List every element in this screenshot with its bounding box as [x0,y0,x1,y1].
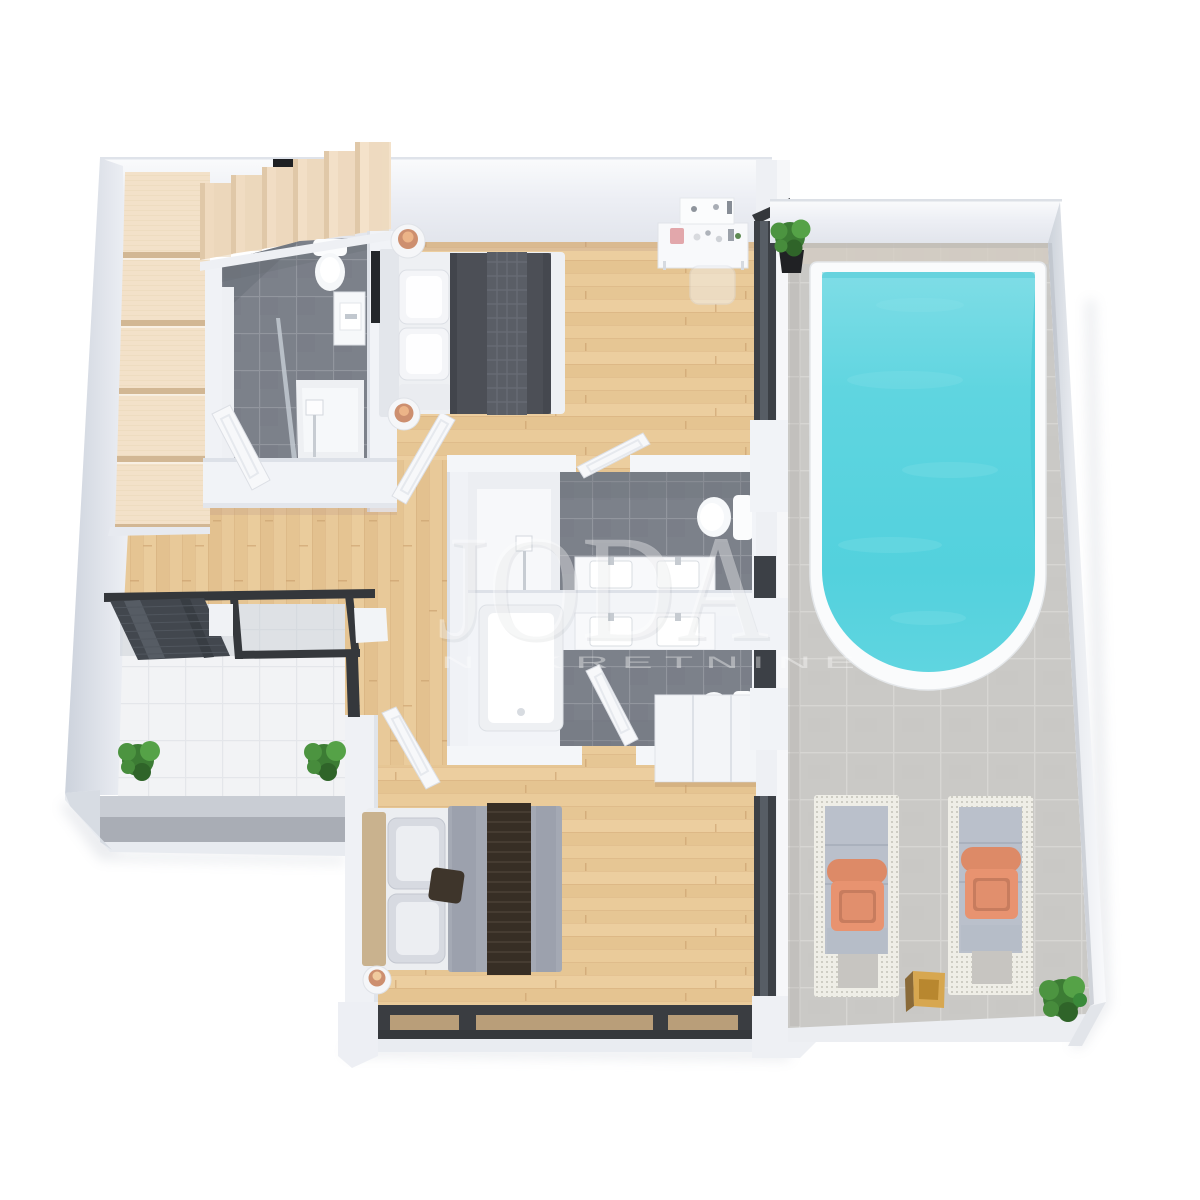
svg-text:N E K R E T N I N E: N E K R E T N I N E [441,653,855,672]
svg-text:JODA: JODA [437,505,769,671]
